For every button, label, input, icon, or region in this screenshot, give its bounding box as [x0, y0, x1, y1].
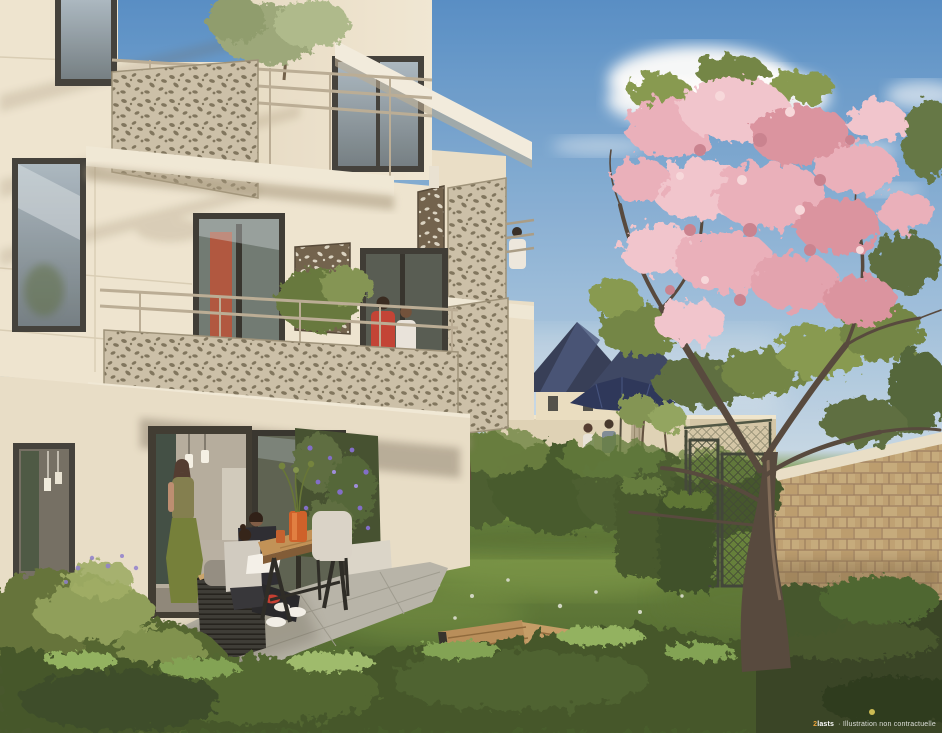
sunlight-glaze: [0, 0, 942, 733]
watermark-text: · Illustration non contractuelle: [838, 721, 936, 729]
architectural-rendering: 2lasts · Illustration non contractuelle: [0, 0, 942, 733]
scene: [0, 0, 942, 733]
watermark: 2lasts · Illustration non contractuelle: [813, 721, 936, 729]
watermark-logo: 2lasts: [813, 721, 834, 729]
